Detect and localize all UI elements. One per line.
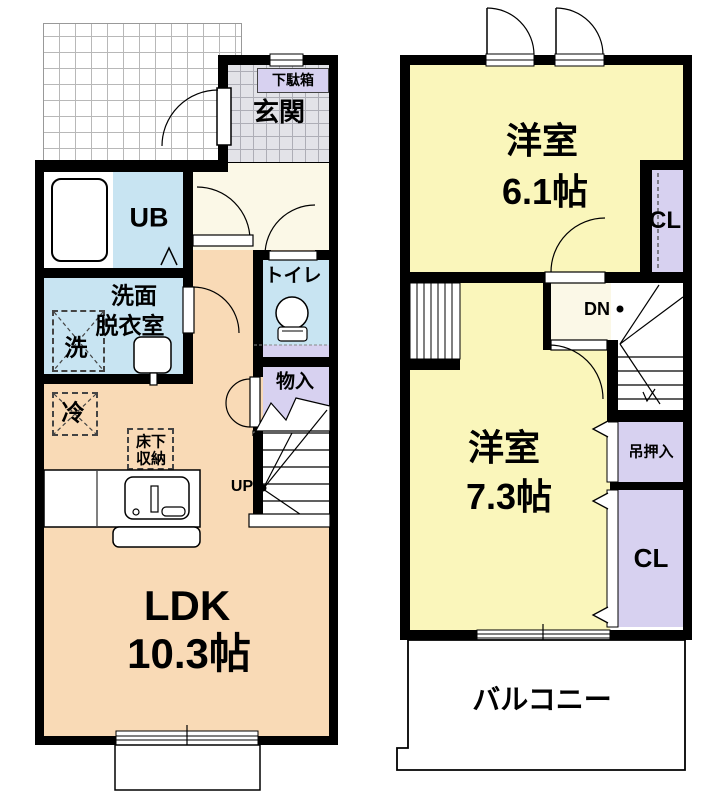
underfloor-label-1: 床下 [136, 435, 166, 450]
up-label: UP [231, 479, 253, 495]
terrace-step [115, 745, 260, 790]
casement-window-1 [486, 8, 534, 66]
stairs-2f-lines [617, 285, 684, 404]
toilet-fixture [276, 297, 308, 341]
storage-break-line [253, 398, 330, 436]
bedroom2-label-2: 7.3帖 [466, 479, 552, 515]
entrance-label: 玄関 [253, 99, 305, 125]
bedroom2-door [549, 340, 607, 399]
entrance-door [162, 88, 231, 146]
storage-bifold-door [226, 377, 260, 427]
hanging-closet-label: 吊押入 [628, 445, 673, 460]
kitchen-counter [44, 470, 200, 547]
toilet-door [265, 205, 317, 260]
dn-label: DN [584, 300, 610, 318]
casement-window-2 [555, 8, 604, 66]
toilet-label: トイレ [264, 267, 321, 286]
ldk-label-1: LDK [144, 585, 230, 627]
dn-dot [617, 306, 624, 313]
washroom-label-2: 脱衣室 [96, 315, 165, 338]
bath-label: UB [130, 205, 169, 232]
shoebox-label: 下駄箱 [272, 73, 314, 87]
bedroom1-door [545, 218, 605, 283]
washbasin [134, 337, 171, 385]
stairs-1f-lines [249, 398, 330, 527]
louver-window [410, 283, 460, 359]
washer-label: 洗 [65, 337, 88, 360]
bath-door-mark [161, 248, 177, 265]
hall-ldk-door [193, 187, 253, 246]
up-dot [260, 485, 267, 492]
plan-linework [0, 0, 718, 800]
underfloor-label-2: 収納 [136, 452, 166, 467]
closet-upper-label: CL [649, 209, 681, 233]
fridge-label: 冷 [62, 402, 85, 425]
bedroom2-label-1: 洋室 [468, 430, 540, 466]
bedroom1-label-1: 洋室 [506, 123, 578, 159]
sliding-door-chevrons [593, 421, 608, 623]
storage-label: 物入 [276, 373, 314, 392]
bedroom1-label-2: 6.1帖 [502, 174, 588, 210]
washroom-label-1: 洗面 [111, 285, 157, 308]
entrance-top-window [270, 54, 303, 66]
washroom-door [183, 287, 239, 333]
closet-lower-label: CL [634, 545, 669, 571]
balcony-label: バルコニー [472, 686, 611, 714]
floor-plan-canvas: 下駄箱 玄関 UB 洗面 脱衣室 洗 トイレ 物入 冷 床下 収納 UP LDK… [0, 0, 718, 800]
ldk-label-2: 10.3帖 [127, 633, 251, 675]
closet-sliding-track [607, 422, 618, 627]
